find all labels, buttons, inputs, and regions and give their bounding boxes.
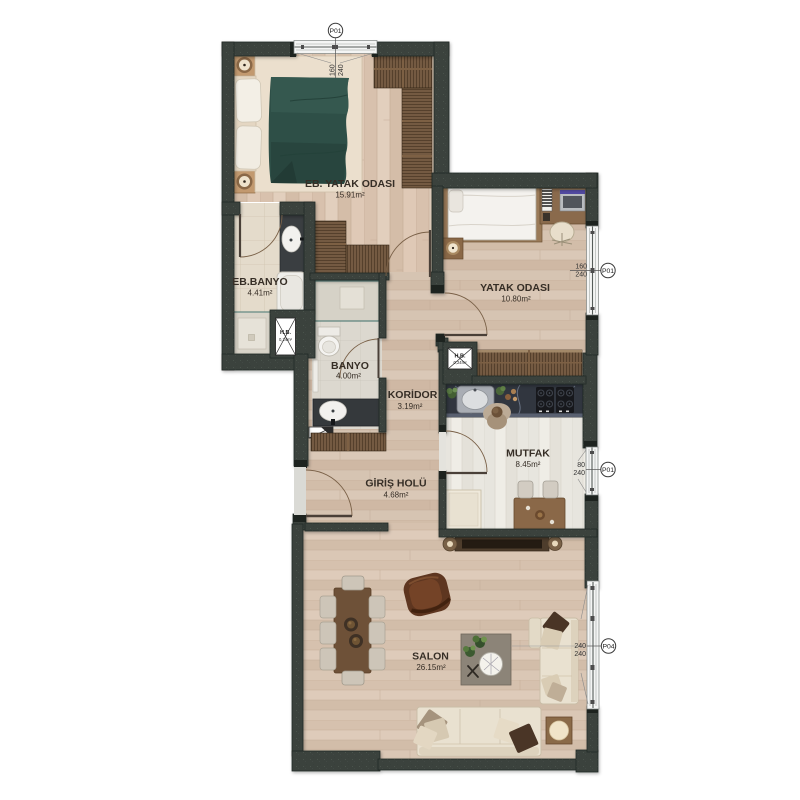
svg-text:0,24m²: 0,24m² (453, 360, 467, 365)
svg-text:EB.BANYO: EB.BANYO (232, 276, 287, 288)
svg-text:240: 240 (338, 64, 345, 76)
svg-text:P01: P01 (602, 467, 614, 474)
svg-text:P04: P04 (602, 644, 614, 651)
svg-text:240: 240 (575, 272, 587, 279)
svg-text:10.80m²: 10.80m² (501, 295, 531, 304)
svg-text:4.41m²: 4.41m² (248, 289, 273, 298)
svg-text:MUTFAK: MUTFAK (506, 448, 550, 460)
svg-text:BANYO: BANYO (331, 360, 369, 372)
svg-text:26.15m²: 26.15m² (416, 663, 446, 672)
svg-text:SALON: SALON (412, 651, 449, 663)
svg-text:3.19m²: 3.19m² (398, 402, 423, 411)
svg-text:EB. YATAK ODASI: EB. YATAK ODASI (305, 178, 395, 190)
svg-text:240: 240 (574, 651, 586, 658)
svg-text:80: 80 (577, 462, 585, 469)
svg-text:15.91m²: 15.91m² (335, 191, 365, 200)
svg-text:0,24m²: 0,24m² (279, 337, 293, 342)
svg-text:4.00m²: 4.00m² (336, 372, 361, 381)
svg-text:GİRİŞ HOLÜ: GİRİŞ HOLÜ (365, 477, 426, 490)
svg-text:P01: P01 (602, 268, 614, 275)
svg-text:240: 240 (573, 470, 585, 477)
svg-text:160: 160 (330, 64, 337, 76)
svg-text:P01: P01 (329, 28, 341, 35)
svg-text:H.B.: H.B. (455, 354, 466, 360)
svg-text:YATAK ODASI: YATAK ODASI (480, 282, 550, 294)
svg-text:H.B.: H.B. (280, 330, 291, 336)
svg-text:4.68m²: 4.68m² (384, 491, 409, 500)
svg-text:160: 160 (575, 264, 587, 271)
svg-text:240: 240 (574, 643, 586, 650)
svg-text:KORİDOR: KORİDOR (388, 388, 438, 401)
svg-text:8.45m²: 8.45m² (516, 460, 541, 469)
